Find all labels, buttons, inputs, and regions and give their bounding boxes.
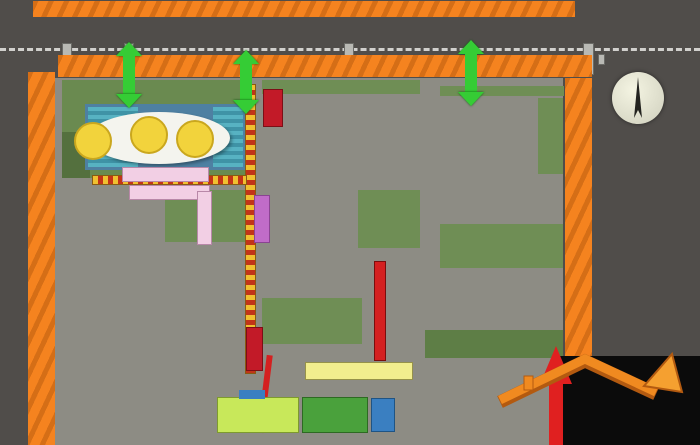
arrow-up-icon bbox=[116, 42, 142, 56]
main-venue-box bbox=[302, 397, 368, 433]
left-parking-bar bbox=[28, 72, 55, 445]
lawn-patch bbox=[538, 98, 563, 174]
arrow-up-icon bbox=[458, 40, 484, 54]
logo-roof-icon bbox=[486, 350, 700, 445]
actor-passage-strip bbox=[374, 261, 386, 361]
road-post bbox=[598, 54, 605, 65]
lawn-patch bbox=[262, 80, 420, 94]
inner-zone-band bbox=[305, 362, 413, 380]
legend bbox=[596, 196, 700, 358]
arrow-up-icon bbox=[233, 50, 259, 64]
entrance-arrow bbox=[233, 50, 259, 114]
rv-area-circle bbox=[130, 116, 168, 154]
outer-zone-band-vertical bbox=[197, 191, 212, 245]
ticket-office-sign bbox=[263, 89, 283, 127]
carnival-zone-box bbox=[217, 397, 299, 433]
ticket-check-sign bbox=[246, 327, 263, 371]
lawn-patch bbox=[262, 298, 362, 344]
lawn-patch bbox=[440, 224, 563, 268]
top-parking-bar bbox=[33, 1, 575, 17]
sub-stage-tag bbox=[239, 390, 265, 399]
compass-icon bbox=[612, 72, 664, 124]
arrow-down-icon bbox=[458, 92, 484, 106]
lantern-zone-band bbox=[254, 195, 270, 243]
site-logo bbox=[486, 350, 700, 445]
rv-area-circle bbox=[176, 120, 214, 158]
outer-zone-band bbox=[122, 167, 209, 182]
entrance-arrow bbox=[116, 42, 142, 108]
stage-box bbox=[371, 398, 395, 432]
lawn-patch bbox=[358, 190, 420, 248]
arrow-down-icon bbox=[233, 100, 259, 114]
festival-map-screenshot bbox=[0, 0, 700, 445]
right-parking-bar bbox=[565, 78, 592, 362]
entrance-arrow bbox=[458, 40, 484, 106]
arrow-down-icon bbox=[116, 94, 142, 108]
rv-area-circle bbox=[74, 122, 112, 160]
